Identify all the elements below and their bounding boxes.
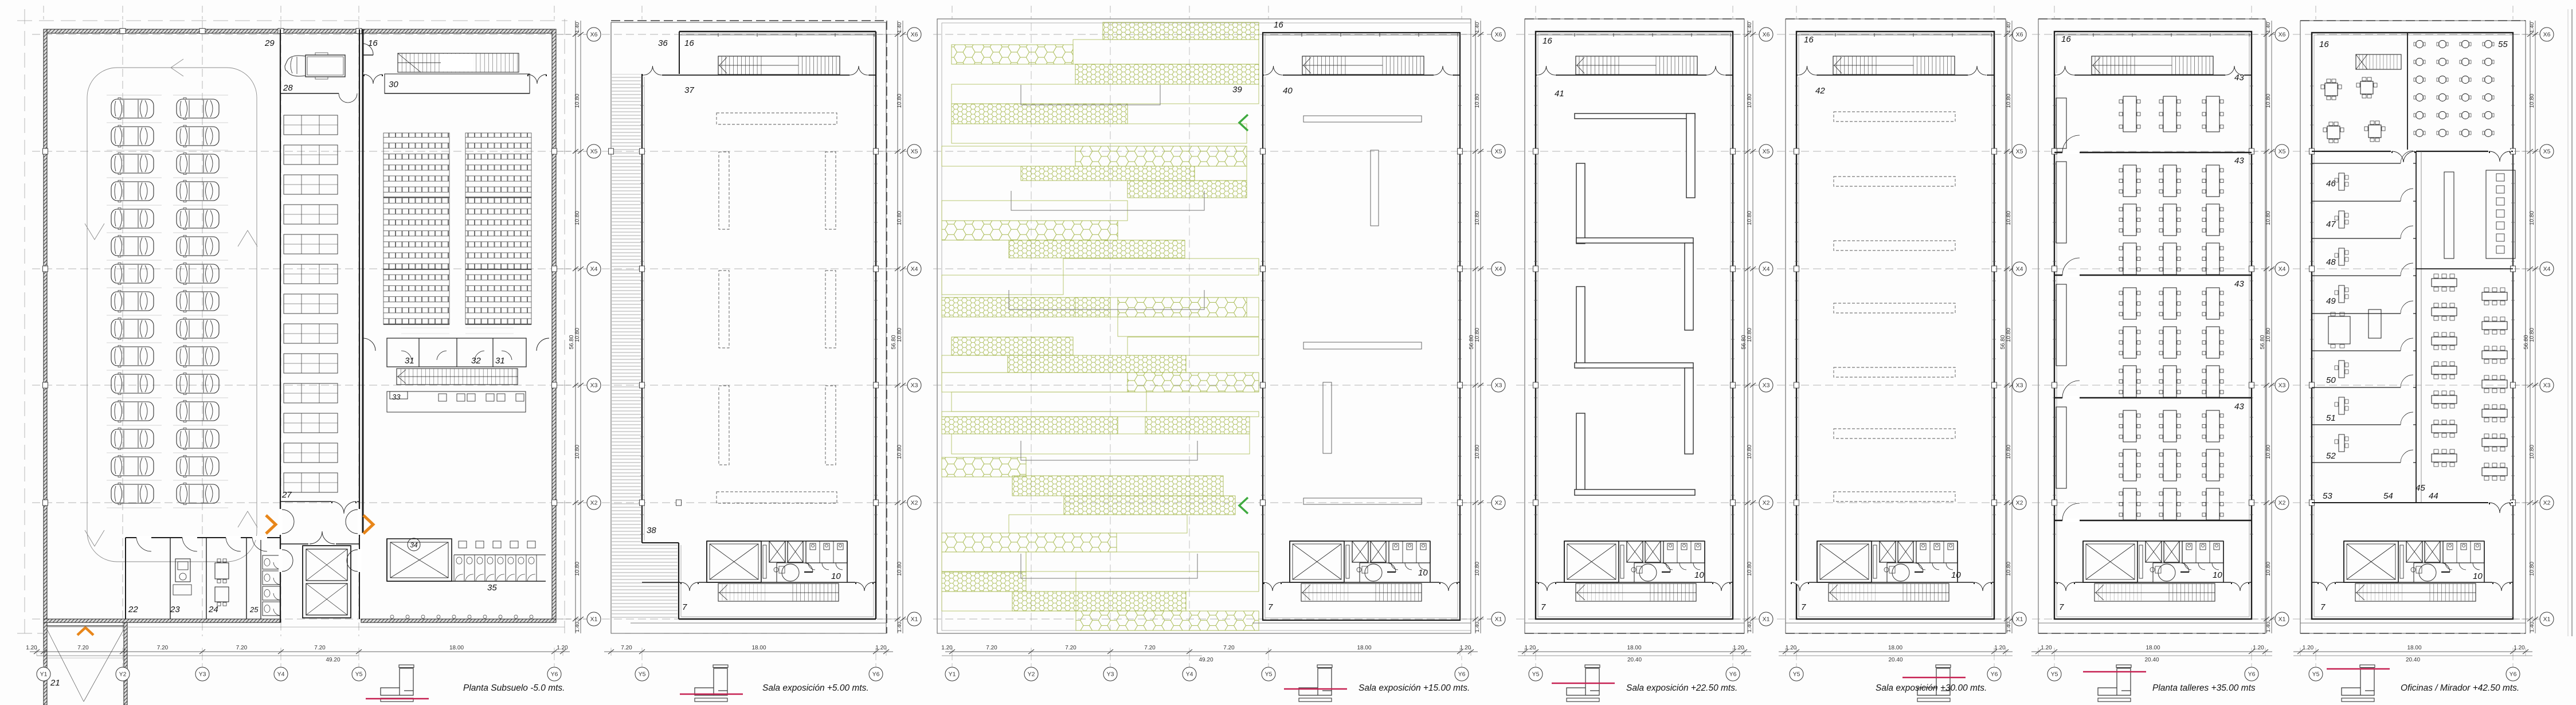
svg-text:10.80: 10.80	[896, 211, 903, 225]
svg-text:50: 50	[2326, 375, 2336, 385]
svg-text:16: 16	[2061, 34, 2071, 44]
svg-text:7: 7	[682, 602, 687, 612]
svg-text:28: 28	[283, 83, 293, 93]
svg-text:10.80: 10.80	[2006, 445, 2012, 459]
svg-text:Y1: Y1	[949, 671, 956, 678]
svg-text:38: 38	[647, 526, 656, 535]
svg-text:X3: X3	[590, 382, 598, 389]
svg-text:X4: X4	[911, 266, 918, 273]
svg-text:1.20: 1.20	[26, 645, 37, 651]
svg-text:Y4: Y4	[277, 671, 285, 678]
svg-text:45: 45	[2416, 483, 2425, 493]
svg-text:31: 31	[495, 356, 505, 366]
svg-text:X1: X1	[1763, 616, 1770, 623]
svg-text:X1: X1	[2279, 616, 2286, 623]
svg-text:10.80: 10.80	[1747, 93, 1753, 108]
svg-text:10.80: 10.80	[1474, 93, 1481, 108]
svg-text:X5: X5	[2543, 148, 2551, 155]
svg-text:51: 51	[2326, 413, 2336, 423]
svg-text:47: 47	[2326, 220, 2336, 229]
svg-text:Y6: Y6	[872, 671, 880, 678]
svg-text:10: 10	[1694, 570, 1704, 580]
svg-text:21: 21	[50, 678, 60, 688]
svg-text:X6: X6	[2016, 32, 2023, 38]
svg-text:Planta talleres +35.00 mts: Planta talleres +35.00 mts	[2152, 683, 2256, 693]
svg-text:7: 7	[1801, 602, 1806, 612]
svg-text:1.40: 1.40	[2529, 22, 2535, 33]
svg-text:Y6: Y6	[1458, 671, 1466, 678]
svg-text:X3: X3	[1495, 382, 1502, 389]
svg-text:Y2: Y2	[1028, 671, 1035, 678]
svg-text:10.80: 10.80	[2006, 328, 2012, 342]
svg-text:Planta Subsuelo -5.0 mts.: Planta Subsuelo -5.0 mts.	[463, 683, 565, 693]
svg-text:10.80: 10.80	[1747, 211, 1753, 225]
svg-text:43: 43	[2234, 279, 2244, 289]
svg-text:10.80: 10.80	[1474, 445, 1481, 459]
svg-text:10.80: 10.80	[574, 93, 581, 108]
svg-text:X2: X2	[1495, 500, 1502, 507]
svg-text:X5: X5	[1763, 148, 1770, 155]
svg-text:10.80: 10.80	[896, 445, 903, 459]
svg-text:36: 36	[658, 38, 668, 48]
svg-text:10: 10	[1418, 568, 1428, 578]
svg-text:20.40: 20.40	[2406, 657, 2420, 663]
svg-text:X3: X3	[1763, 382, 1770, 389]
svg-text:1.20: 1.20	[1786, 645, 1797, 651]
svg-text:X1: X1	[2543, 616, 2551, 623]
svg-text:X6: X6	[590, 32, 598, 38]
svg-text:10.80: 10.80	[2529, 93, 2535, 108]
svg-text:X2: X2	[2543, 500, 2551, 507]
svg-text:16: 16	[1804, 35, 1814, 45]
svg-text:10.80: 10.80	[2265, 562, 2272, 576]
svg-text:31: 31	[405, 356, 414, 366]
svg-text:Oficinas / Mirador +42.50 mts.: Oficinas / Mirador +42.50 mts.	[2401, 683, 2519, 693]
svg-text:53: 53	[2323, 491, 2332, 501]
svg-text:X4: X4	[1495, 266, 1502, 273]
svg-text:1.40: 1.40	[1474, 22, 1481, 33]
svg-text:18.00: 18.00	[1357, 645, 1371, 651]
svg-text:44: 44	[2429, 491, 2438, 501]
svg-text:7: 7	[2320, 602, 2326, 612]
svg-text:1.20: 1.20	[1460, 645, 1471, 651]
svg-text:10.80: 10.80	[896, 562, 903, 576]
svg-text:16: 16	[1274, 20, 1283, 30]
svg-text:7: 7	[1268, 602, 1273, 612]
svg-text:7.20: 7.20	[1223, 645, 1235, 651]
svg-text:10.80: 10.80	[2529, 328, 2535, 342]
svg-text:Y1: Y1	[40, 671, 48, 678]
svg-text:X5: X5	[590, 148, 598, 155]
svg-text:X5: X5	[2016, 148, 2023, 155]
svg-text:41: 41	[1555, 89, 1564, 99]
svg-text:32: 32	[471, 356, 481, 366]
svg-text:X4: X4	[2016, 266, 2023, 273]
svg-text:X5: X5	[2279, 148, 2286, 155]
svg-text:X4: X4	[2543, 266, 2551, 273]
svg-text:25: 25	[249, 605, 259, 614]
svg-text:27: 27	[281, 490, 292, 500]
svg-text:1.20: 1.20	[1525, 645, 1536, 651]
svg-text:24: 24	[208, 605, 218, 614]
svg-text:X2: X2	[1763, 500, 1770, 507]
svg-text:20.40: 20.40	[1627, 657, 1642, 663]
svg-text:52: 52	[2326, 451, 2336, 461]
svg-text:18.00: 18.00	[1627, 645, 1641, 651]
svg-text:Y3: Y3	[1107, 671, 1114, 678]
svg-text:10.80: 10.80	[2265, 328, 2272, 342]
svg-text:Y3: Y3	[199, 671, 206, 678]
svg-text:10.80: 10.80	[896, 328, 903, 342]
svg-text:10.80: 10.80	[1747, 328, 1753, 342]
svg-text:22: 22	[128, 605, 138, 614]
svg-text:10.80: 10.80	[1747, 562, 1753, 576]
svg-text:7.20: 7.20	[236, 645, 248, 651]
svg-text:43: 43	[2234, 402, 2244, 412]
svg-text:Y2: Y2	[119, 671, 127, 678]
svg-text:Sala exposición +30.00 mts.: Sala exposición +30.00 mts.	[1876, 683, 1987, 693]
svg-text:Y6: Y6	[1991, 671, 1998, 678]
svg-text:20.40: 20.40	[2144, 657, 2159, 663]
svg-text:7: 7	[2059, 602, 2064, 612]
svg-text:Y5: Y5	[1793, 671, 1800, 678]
svg-text:1.40: 1.40	[1747, 22, 1753, 33]
svg-text:1.40: 1.40	[1474, 622, 1481, 633]
svg-text:1.20: 1.20	[875, 645, 887, 651]
svg-text:X6: X6	[1495, 32, 1502, 38]
svg-text:10.80: 10.80	[2529, 445, 2535, 459]
svg-text:Y5: Y5	[1532, 671, 1540, 678]
svg-text:Sala exposición +15.00 mts.: Sala exposición +15.00 mts.	[1359, 683, 1470, 693]
svg-text:23: 23	[170, 605, 180, 614]
svg-text:10.80: 10.80	[1474, 211, 1481, 225]
svg-text:10.80: 10.80	[574, 562, 581, 576]
svg-text:1.40: 1.40	[2265, 22, 2272, 33]
svg-text:1.40: 1.40	[2006, 22, 2012, 33]
svg-text:1.20: 1.20	[1733, 645, 1744, 651]
svg-text:18.00: 18.00	[449, 645, 464, 651]
svg-text:10.80: 10.80	[896, 93, 903, 108]
svg-text:X2: X2	[2279, 500, 2286, 507]
svg-text:1.20: 1.20	[2041, 645, 2052, 651]
svg-text:X3: X3	[2279, 382, 2286, 389]
svg-text:56.80: 56.80	[2260, 335, 2266, 349]
svg-text:1.40: 1.40	[2265, 622, 2272, 633]
svg-text:56.80: 56.80	[1469, 335, 1475, 349]
svg-text:X4: X4	[590, 266, 598, 273]
svg-text:7.20: 7.20	[621, 645, 632, 651]
svg-text:20.40: 20.40	[1888, 657, 1902, 663]
svg-text:X6: X6	[2279, 32, 2286, 38]
svg-text:30: 30	[389, 80, 398, 89]
svg-text:1.20: 1.20	[2253, 645, 2264, 651]
svg-text:7.20: 7.20	[157, 645, 169, 651]
svg-text:1.20: 1.20	[941, 645, 953, 651]
svg-text:35: 35	[487, 583, 497, 593]
svg-text:1.20: 1.20	[2303, 645, 2314, 651]
svg-text:1.40: 1.40	[574, 22, 581, 33]
svg-text:X2: X2	[911, 500, 918, 507]
svg-text:Sala exposición +22.50 mts.: Sala exposición +22.50 mts.	[1626, 683, 1737, 693]
svg-text:56.80: 56.80	[2523, 335, 2530, 349]
svg-text:Y6: Y6	[2248, 671, 2256, 678]
svg-text:7: 7	[1541, 602, 1546, 612]
svg-text:X1: X1	[1495, 616, 1502, 623]
svg-text:42: 42	[1815, 86, 1825, 96]
svg-text:X3: X3	[2016, 382, 2023, 389]
svg-text:1.40: 1.40	[2529, 622, 2535, 633]
svg-text:43: 43	[2234, 156, 2244, 166]
svg-text:1.20: 1.20	[2514, 645, 2525, 651]
svg-text:10.80: 10.80	[574, 445, 581, 459]
svg-text:49.20: 49.20	[326, 657, 340, 663]
svg-text:10.80: 10.80	[2006, 211, 2012, 225]
svg-text:10.80: 10.80	[2006, 562, 2012, 576]
svg-text:X4: X4	[1763, 266, 1770, 273]
svg-text:Y6: Y6	[1729, 671, 1737, 678]
svg-text:10.80: 10.80	[2529, 211, 2535, 225]
svg-text:Y5: Y5	[639, 671, 646, 678]
svg-text:16: 16	[1543, 36, 1552, 46]
svg-text:10: 10	[831, 571, 841, 581]
svg-text:X2: X2	[590, 500, 598, 507]
svg-text:X1: X1	[2016, 616, 2023, 623]
svg-text:48: 48	[2326, 257, 2336, 267]
svg-text:10: 10	[1951, 570, 1961, 580]
svg-text:18.00: 18.00	[2407, 645, 2421, 651]
svg-text:54: 54	[2383, 491, 2393, 501]
svg-text:55: 55	[2498, 40, 2508, 49]
svg-text:X1: X1	[590, 616, 598, 623]
svg-text:16: 16	[2319, 40, 2329, 49]
svg-text:56.80: 56.80	[2000, 335, 2006, 349]
svg-text:X1: X1	[911, 616, 918, 623]
svg-text:49.20: 49.20	[1199, 657, 1213, 663]
svg-text:Y5: Y5	[1265, 671, 1273, 678]
svg-text:7.20: 7.20	[314, 645, 326, 651]
svg-text:1.20: 1.20	[1994, 645, 2006, 651]
svg-text:10: 10	[2213, 570, 2222, 580]
svg-text:40: 40	[1283, 86, 1293, 96]
svg-text:10.80: 10.80	[574, 211, 581, 225]
svg-text:7.20: 7.20	[986, 645, 997, 651]
svg-text:10.80: 10.80	[2006, 93, 2012, 108]
svg-text:1.40: 1.40	[896, 22, 903, 33]
svg-text:7.20: 7.20	[1144, 645, 1156, 651]
svg-text:10.80: 10.80	[574, 328, 581, 342]
svg-text:1.40: 1.40	[1747, 622, 1753, 633]
svg-text:X4: X4	[2279, 266, 2286, 273]
svg-text:7.20: 7.20	[77, 645, 89, 651]
svg-text:X5: X5	[1495, 148, 1502, 155]
svg-text:29: 29	[264, 38, 275, 48]
svg-text:1.20: 1.20	[557, 645, 568, 651]
svg-text:X2: X2	[2016, 500, 2023, 507]
svg-text:X3: X3	[2543, 382, 2551, 389]
svg-text:10: 10	[2473, 571, 2483, 581]
svg-text:1.40: 1.40	[896, 622, 903, 633]
svg-text:7.20: 7.20	[1065, 645, 1076, 651]
svg-text:56.80: 56.80	[891, 335, 897, 349]
svg-text:X3: X3	[911, 382, 918, 389]
svg-text:10.80: 10.80	[2265, 93, 2272, 108]
svg-text:18.00: 18.00	[751, 645, 766, 651]
svg-text:10.80: 10.80	[1474, 562, 1481, 576]
svg-text:18.00: 18.00	[1888, 645, 1902, 651]
svg-text:33: 33	[392, 393, 401, 401]
svg-text:X5: X5	[911, 148, 918, 155]
svg-text:Y4: Y4	[1186, 671, 1193, 678]
svg-text:Y6: Y6	[2510, 671, 2517, 678]
svg-text:X6: X6	[2543, 32, 2551, 38]
svg-text:Y5: Y5	[355, 671, 363, 678]
svg-text:Y5: Y5	[2051, 671, 2058, 678]
svg-text:16: 16	[368, 38, 378, 48]
svg-text:49: 49	[2326, 296, 2336, 306]
svg-text:10.80: 10.80	[2265, 445, 2272, 459]
svg-text:56.80: 56.80	[1741, 335, 1747, 349]
svg-text:18.00: 18.00	[2146, 645, 2160, 651]
svg-text:X6: X6	[911, 32, 918, 38]
svg-text:10.80: 10.80	[2265, 211, 2272, 225]
svg-text:10.80: 10.80	[1747, 445, 1753, 459]
svg-text:10.80: 10.80	[2529, 562, 2535, 576]
svg-text:39: 39	[1232, 85, 1242, 95]
svg-text:43: 43	[2234, 73, 2244, 83]
svg-text:Y6: Y6	[551, 671, 558, 678]
svg-text:34: 34	[410, 541, 418, 549]
svg-text:1.40: 1.40	[574, 622, 581, 633]
svg-text:56.80: 56.80	[569, 335, 575, 349]
svg-text:37: 37	[684, 85, 694, 95]
svg-text:1.40: 1.40	[2006, 622, 2012, 633]
svg-text:10.80: 10.80	[1474, 328, 1481, 342]
svg-text:Sala exposición +5.00 mts.: Sala exposición +5.00 mts.	[762, 683, 869, 693]
svg-text:Y5: Y5	[2312, 671, 2320, 678]
svg-text:16: 16	[684, 38, 694, 48]
svg-text:X6: X6	[1763, 32, 1770, 38]
